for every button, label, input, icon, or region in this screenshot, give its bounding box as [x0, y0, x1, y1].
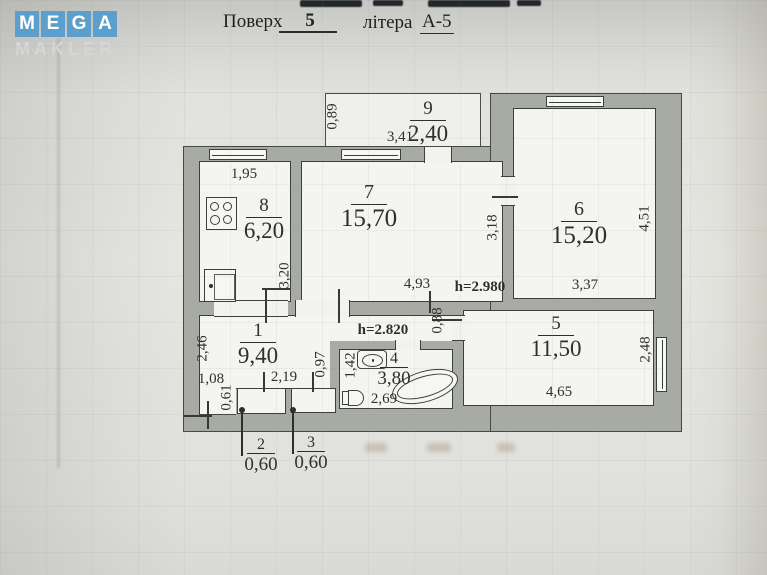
- letter-label: літера: [363, 12, 412, 34]
- label-room-8: 8 6,20: [219, 196, 309, 243]
- label-room-3: 3 0,60: [266, 434, 356, 474]
- floor-label: Поверх: [223, 11, 283, 33]
- dim-room7-right: 3,18: [485, 198, 502, 258]
- kitchen-sink-icon: [204, 269, 236, 302]
- dim-room5-entry: 0,88: [430, 291, 447, 351]
- leader-line-closet3: [292, 410, 294, 454]
- room7-window: [341, 149, 401, 160]
- dim-bath-bottom: 2,69: [354, 391, 414, 408]
- room4-area: 3,80: [349, 368, 439, 389]
- height-room7: h=2.980: [438, 279, 522, 296]
- logo-tile-e: E: [41, 11, 65, 37]
- dim-bath-left: 1,42: [343, 336, 360, 396]
- cutoff-text-fragment: [373, 0, 403, 6]
- right-shadow: [687, 0, 767, 575]
- room1-area: 9,40: [213, 343, 303, 369]
- room7-number: 7: [351, 182, 387, 205]
- bleedthrough-mark: [497, 443, 515, 452]
- room4-number: 4: [380, 350, 408, 368]
- room1-number: 1: [240, 321, 276, 343]
- logo-tile-m: M: [15, 11, 39, 37]
- dim-balcony-width: 3,41: [370, 129, 430, 146]
- dim-hall-mid: 2,19: [254, 369, 314, 386]
- scanned-floor-plan-photo: MEGA MAKLER Поверх 5 літера А-5: [0, 0, 767, 575]
- label-room-4: 4 3,80: [349, 350, 439, 390]
- kitchen-window: [209, 149, 267, 160]
- dim-room6-bottom: 3,37: [555, 277, 615, 294]
- megamakler-logo: MEGA MAKLER: [15, 11, 119, 60]
- bleedthrough-mark: [427, 443, 451, 452]
- room7-door-opening: [295, 300, 350, 317]
- label-room-7: 7 15,70: [324, 182, 414, 233]
- floor-value: 5: [295, 10, 325, 32]
- label-room-6: 6 15,20: [534, 199, 624, 250]
- leader-line-closet2: [241, 410, 243, 456]
- letter-value: А-5: [420, 11, 454, 34]
- room3-area: 0,60: [266, 452, 356, 473]
- dim-hall-left: 2,46: [195, 319, 212, 379]
- dim-kitchen-right: 3,20: [277, 246, 294, 306]
- room6-number: 6: [561, 199, 597, 222]
- dim-tick: [265, 289, 267, 323]
- room6-window: [546, 96, 604, 107]
- dim-hall-left3: 0,61: [219, 368, 236, 428]
- room8-number: 8: [246, 196, 282, 218]
- cutoff-text-fragment: [300, 0, 362, 7]
- room5-number: 5: [538, 314, 574, 336]
- paper-fold-shadow: [57, 38, 60, 468]
- balcony-door-opening: [424, 147, 452, 163]
- dim-tick: [338, 289, 340, 323]
- room8-area: 6,20: [219, 218, 309, 244]
- cutoff-text-fragment: [428, 0, 510, 7]
- dim-kitchen-top: 1,95: [214, 166, 274, 183]
- room5-window: [656, 337, 667, 392]
- room9-number: 9: [410, 99, 446, 121]
- dim-balcony-depth: 0,89: [325, 87, 342, 147]
- left-shadow: [0, 0, 190, 575]
- bleedthrough-mark: [365, 443, 387, 452]
- label-room-1: 1 9,40: [213, 321, 303, 368]
- floor-underline: [279, 31, 337, 33]
- room5-area: 11,50: [511, 336, 601, 362]
- logo-tile-g: G: [67, 11, 91, 37]
- bathroom-door-opening: [395, 340, 421, 350]
- dim-hall-right: 0,97: [313, 335, 330, 395]
- room7-area: 15,70: [324, 205, 414, 233]
- logo-word-makler: MAKLER: [15, 39, 119, 60]
- dim-room5-bottom: 4,65: [529, 384, 589, 401]
- logo-tile-a: A: [93, 11, 117, 37]
- room6-area: 15,20: [534, 222, 624, 250]
- room6-door-opening: [501, 176, 515, 206]
- cutoff-text-fragment: [517, 0, 541, 6]
- dim-room6-right: 4,51: [637, 189, 654, 249]
- room3-number: 3: [297, 434, 325, 452]
- label-room-5: 5 11,50: [511, 314, 601, 361]
- dim-tick: [184, 415, 212, 417]
- dim-room5-right: 2,48: [638, 320, 655, 380]
